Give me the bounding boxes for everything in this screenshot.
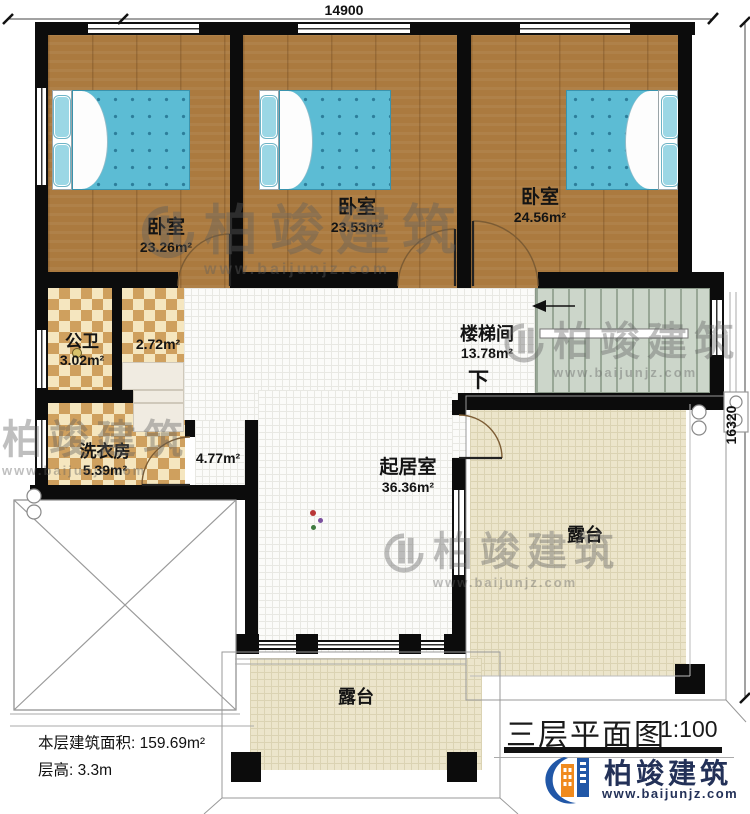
- wall-segment: [710, 288, 724, 300]
- wall-segment: [199, 22, 298, 35]
- pillar: [444, 634, 466, 654]
- laundry-counter: [133, 403, 184, 432]
- pillow: [261, 96, 277, 138]
- terrace-pillar: [447, 752, 477, 782]
- wall-segment: [230, 272, 398, 288]
- terrace-pillar: [675, 664, 705, 694]
- wall-segment: [452, 400, 466, 415]
- room-area: 23.26m²: [140, 239, 192, 256]
- window: [298, 22, 410, 35]
- bedroom1-label: 卧室 23.26m²: [140, 218, 192, 256]
- room-name: 楼梯间: [460, 325, 514, 345]
- wall-segment: [410, 22, 520, 35]
- window: [35, 420, 48, 468]
- pillow: [261, 144, 277, 186]
- window: [259, 640, 296, 650]
- room-name: 露台: [567, 526, 603, 546]
- room-name: 卧室: [331, 198, 383, 219]
- wall-segment: [452, 458, 466, 490]
- wall-segment: [35, 22, 88, 35]
- blanket: [280, 91, 313, 189]
- brand-logo-icon: [540, 750, 602, 806]
- mattress: [566, 90, 658, 190]
- bed-3: [566, 90, 678, 190]
- bedroom2-label: 卧室 23.53m²: [331, 198, 383, 236]
- living-room-floor: [258, 390, 452, 652]
- window: [452, 490, 466, 575]
- terrace-right-label: 露台: [567, 526, 603, 546]
- laundry-label: 洗衣房 5.39m²: [80, 443, 131, 478]
- dimension-top: 14900: [322, 2, 366, 18]
- info-block: 本层建筑面积: 159.69m² 层高: 3.3m: [38, 730, 205, 784]
- vanity-label: 2.72m²: [136, 336, 180, 353]
- wall-segment: [185, 420, 195, 437]
- window: [710, 300, 724, 355]
- pillar: [399, 634, 421, 654]
- wall-segment: [458, 393, 724, 410]
- pillar: [296, 634, 318, 654]
- window: [35, 330, 48, 388]
- terrace-pillar: [231, 752, 261, 782]
- wall-segment: [230, 35, 243, 288]
- room-area: 13.78m²: [460, 345, 514, 362]
- bedroom3-label: 卧室 24.56m²: [514, 188, 566, 226]
- room-name: 卧室: [514, 188, 566, 209]
- floor-height-info: 层高: 3.3m: [38, 757, 205, 784]
- dimension-right: 16320: [723, 393, 739, 457]
- living-room-label: 起居室 36.36m²: [379, 458, 436, 496]
- pillow: [662, 144, 678, 186]
- room-name: 卧室: [140, 218, 192, 239]
- bed-2: [259, 90, 392, 190]
- blanket: [73, 91, 108, 189]
- plan-scale: 1:100: [660, 716, 718, 743]
- pillow: [54, 96, 70, 138]
- sliding-door: [318, 640, 399, 650]
- counter-joint: [133, 390, 184, 403]
- bathroom-label: 公卫 3.02m²: [60, 333, 104, 368]
- window: [88, 22, 199, 35]
- room-name: 公卫: [60, 333, 104, 352]
- blanket: [625, 91, 658, 189]
- wall-segment: [30, 485, 247, 500]
- flower-decor: [318, 518, 323, 523]
- room-area: 36.36m²: [379, 479, 436, 496]
- room-area: 4.77m²: [196, 450, 240, 467]
- stairs-down-label: 下: [468, 364, 489, 394]
- stairwell-label: 楼梯间 13.78m²: [460, 325, 514, 362]
- room-name: 起居室: [379, 458, 436, 479]
- room-area: 24.56m²: [514, 209, 566, 226]
- corridor-label: 4.77m²: [196, 450, 240, 467]
- bed-1: [52, 90, 192, 190]
- wall-segment: [35, 185, 48, 330]
- room-area: 2.72m²: [136, 336, 180, 353]
- terrace-door-threshold: [452, 415, 466, 458]
- room-name: 洗衣房: [80, 443, 131, 462]
- room-name: 露台: [338, 688, 374, 708]
- room-area: 23.53m²: [331, 219, 383, 236]
- window: [520, 22, 630, 35]
- pillar: [235, 634, 259, 654]
- wall-segment: [538, 272, 724, 288]
- wall-segment: [245, 420, 258, 652]
- wall-segment: [678, 22, 692, 288]
- room-area: 3.02m²: [60, 352, 104, 369]
- wall-segment: [457, 35, 471, 288]
- wall-segment: [710, 355, 724, 393]
- wall-segment: [452, 575, 466, 636]
- vanity-counter: [122, 362, 184, 390]
- floor-area-info: 本层建筑面积: 159.69m²: [38, 730, 205, 757]
- room-area: 5.39m²: [80, 462, 131, 479]
- window: [35, 88, 48, 185]
- stairs: [535, 288, 710, 393]
- mattress: [279, 90, 391, 190]
- pillow: [662, 96, 678, 138]
- wall-segment: [112, 288, 122, 390]
- window: [421, 640, 444, 650]
- wall-segment: [35, 272, 178, 288]
- pillow: [54, 144, 70, 186]
- floor-plan: 卧室 23.26m² 卧室 23.53m² 卧室 24.56m² 公卫 3.02…: [0, 0, 750, 814]
- flower-decor: [310, 510, 316, 516]
- wall-segment: [35, 35, 48, 88]
- mattress: [72, 90, 190, 190]
- flower-decor: [311, 525, 316, 530]
- wall-segment: [35, 390, 133, 403]
- terrace-bottom-label: 露台: [338, 688, 374, 708]
- brand-url: www.baijunjz.com: [602, 786, 738, 801]
